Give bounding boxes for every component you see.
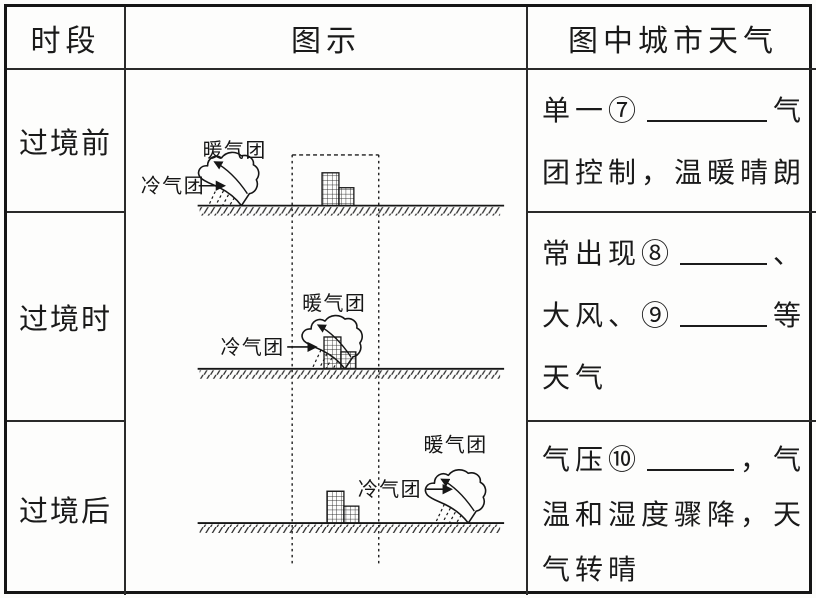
period-label-before: 过境前	[19, 120, 112, 162]
weather-text: 常出现⑧	[542, 232, 674, 272]
cold-front-symbol	[425, 470, 485, 523]
weather-text: 气	[773, 89, 806, 129]
header-weather: 图中城市天气	[528, 7, 816, 70]
header-period: 时段	[7, 7, 126, 70]
diagram-cell: 暖气团 冷气团 暖气团 冷气团	[126, 70, 528, 595]
ground-hatching	[200, 370, 500, 378]
cold-airmass-label: 冷气团	[221, 336, 285, 359]
fill-in-blank-10	[647, 469, 734, 471]
front-passage-diagram: 暖气团 冷气团 暖气团 冷气团	[126, 70, 526, 595]
city-building	[322, 173, 354, 206]
weather-text: 温和湿度骤降，天	[542, 493, 806, 533]
period-cell-before: 过境前	[7, 70, 126, 213]
cold-front-table: 时段 图示 图中城市天气 过境前 过境时 过境后	[4, 4, 812, 594]
weather-text: 天气	[542, 356, 608, 396]
weather-text: 单一⑦	[542, 89, 641, 129]
weather-line: 单一⑦ 气	[542, 78, 806, 140]
diagram-during: 暖气团 冷气团	[198, 292, 504, 379]
warm-airmass-label: 暖气团	[302, 292, 366, 315]
weather-line: 大风、⑨ 等	[542, 283, 806, 345]
weather-cell-after: 气压⑩ ，气 温和湿度骤降，天 气转晴	[528, 422, 816, 595]
cold-airmass-label: 冷气团	[358, 478, 422, 501]
weather-line: 气压⑩ ，气	[542, 430, 806, 485]
weather-line: 天气	[542, 345, 806, 407]
weather-line: 常出现⑧ 、	[542, 221, 806, 283]
weather-text: 、	[773, 232, 806, 272]
header-weather-label: 图中城市天气	[568, 16, 778, 60]
period-label-after: 过境后	[19, 488, 112, 530]
weather-line: 气转晴	[542, 540, 806, 595]
weather-text: ，气	[740, 438, 806, 478]
weather-text: 大风、⑨	[542, 294, 674, 334]
header-diagram-label: 图示	[291, 16, 361, 60]
weather-cell-during: 常出现⑧ 、 大风、⑨ 等 天气	[528, 213, 816, 422]
city-building	[327, 491, 359, 523]
period-cell-after: 过境后	[7, 422, 126, 595]
warm-airmass-label: 暖气团	[203, 139, 267, 162]
period-cell-during: 过境时	[7, 213, 126, 422]
ground-hatching	[200, 525, 500, 533]
ground-hatching	[200, 207, 500, 215]
warm-airmass-label: 暖气团	[424, 433, 488, 456]
weather-line: 温和湿度骤降，天	[542, 485, 806, 540]
weather-text: 等	[773, 294, 806, 334]
fill-in-blank-7	[647, 120, 767, 122]
fill-in-blank-8	[680, 263, 767, 265]
fill-in-blank-9	[680, 325, 767, 327]
header-diagram: 图示	[126, 7, 528, 70]
weather-text: 团控制，温暖晴朗	[542, 151, 806, 191]
cold-airmass-label: 冷气团	[141, 175, 205, 198]
textbook-page: 时段 图示 图中城市天气 过境前 过境时 过境后	[0, 0, 816, 598]
header-period-label: 时段	[31, 16, 101, 60]
weather-text: 气转晴	[542, 548, 641, 588]
weather-line: 团控制，温暖晴朗	[542, 140, 806, 202]
weather-text: 气压⑩	[542, 438, 641, 478]
weather-cell-before: 单一⑦ 气 团控制，温暖晴朗	[528, 70, 816, 213]
period-label-during: 过境时	[19, 296, 112, 338]
diagram-before: 暖气团 冷气团	[141, 139, 504, 216]
diagram-after: 暖气团 冷气团	[198, 433, 504, 533]
